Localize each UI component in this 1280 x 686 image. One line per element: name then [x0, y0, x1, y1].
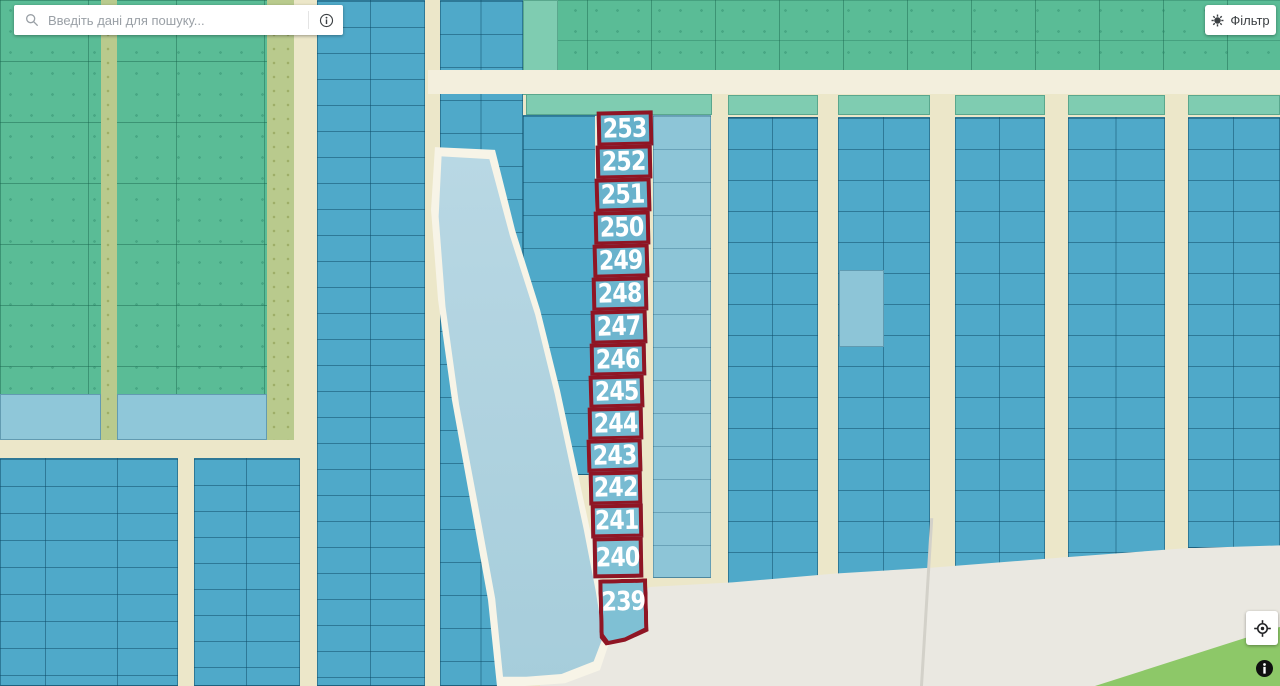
- parcel-label: 250: [600, 212, 644, 244]
- parcel-block: [317, 0, 425, 686]
- parcel-244[interactable]: 244: [588, 406, 644, 440]
- parcel-label: 246: [596, 344, 640, 376]
- parcel-250[interactable]: 250: [594, 210, 651, 245]
- parcel-252[interactable]: 252: [596, 144, 653, 179]
- parcel-block: [0, 458, 178, 686]
- teal-strip: [1188, 95, 1280, 115]
- parcel-block: [653, 115, 711, 578]
- crosshair-target-icon: [1253, 619, 1272, 638]
- green-field-block: [523, 0, 1280, 72]
- parcel-block: [728, 117, 818, 585]
- parcel-label: 241: [595, 505, 639, 536]
- teal-strip: [955, 95, 1045, 115]
- olive-strip: [267, 0, 294, 440]
- parcel-label: 240: [596, 542, 640, 573]
- search-icon: [24, 12, 40, 28]
- parcel-245[interactable]: 245: [589, 374, 645, 409]
- parcel-label: 244: [593, 408, 637, 440]
- filter-gear-icon: [1211, 14, 1224, 27]
- parcel-240[interactable]: 240: [593, 537, 644, 579]
- teal-strip: [728, 95, 818, 115]
- parcel-249[interactable]: 249: [593, 243, 650, 279]
- parcel-label: 247: [597, 311, 641, 343]
- parcel-248[interactable]: 248: [592, 276, 649, 311]
- parcel-label: 248: [598, 278, 642, 310]
- parcel-block: [1068, 117, 1165, 558]
- teal-strip: [1068, 95, 1165, 115]
- parcel-247[interactable]: 247: [591, 309, 648, 345]
- filter-button-label: Фільтр: [1230, 13, 1269, 28]
- info-filled-icon[interactable]: [1256, 660, 1273, 677]
- parcel-label: 252: [602, 146, 646, 178]
- road: [428, 70, 1280, 94]
- parcel-label: 253: [603, 113, 647, 145]
- green-field-block: [0, 0, 294, 394]
- info-circle-icon[interactable]: [309, 5, 343, 35]
- parcel-243[interactable]: 243: [587, 438, 643, 473]
- parcel-label: 242: [593, 472, 637, 504]
- olive-strip: [101, 0, 117, 440]
- parcel-253[interactable]: 253: [597, 110, 654, 146]
- parcel-label: 239: [601, 586, 645, 618]
- cadastral-map[interactable]: 253 252 251 250 249 248 247 246 245 244 …: [0, 0, 1280, 686]
- parcel-block: [194, 458, 300, 686]
- search-input[interactable]: [40, 13, 308, 28]
- water-canal: [0, 394, 101, 440]
- teal-strip: [838, 95, 930, 115]
- parcel-246[interactable]: 246: [590, 342, 647, 376]
- parcel-242[interactable]: 242: [589, 470, 643, 505]
- parcel-label: 245: [594, 376, 638, 408]
- parcel-label: 243: [592, 440, 636, 472]
- parcel-label: 251: [601, 179, 645, 211]
- parcel-251[interactable]: 251: [595, 177, 652, 213]
- parcel-block: [1188, 117, 1280, 548]
- parcel-label: 249: [599, 245, 643, 277]
- parcel-241[interactable]: 241: [591, 504, 644, 539]
- filter-button[interactable]: Фільтр: [1205, 5, 1276, 35]
- light-parcel: [839, 270, 884, 347]
- search-bar[interactable]: [14, 5, 343, 35]
- parcel-block: [955, 117, 1045, 570]
- geolocate-button[interactable]: [1246, 611, 1278, 645]
- water-canal: [117, 394, 267, 440]
